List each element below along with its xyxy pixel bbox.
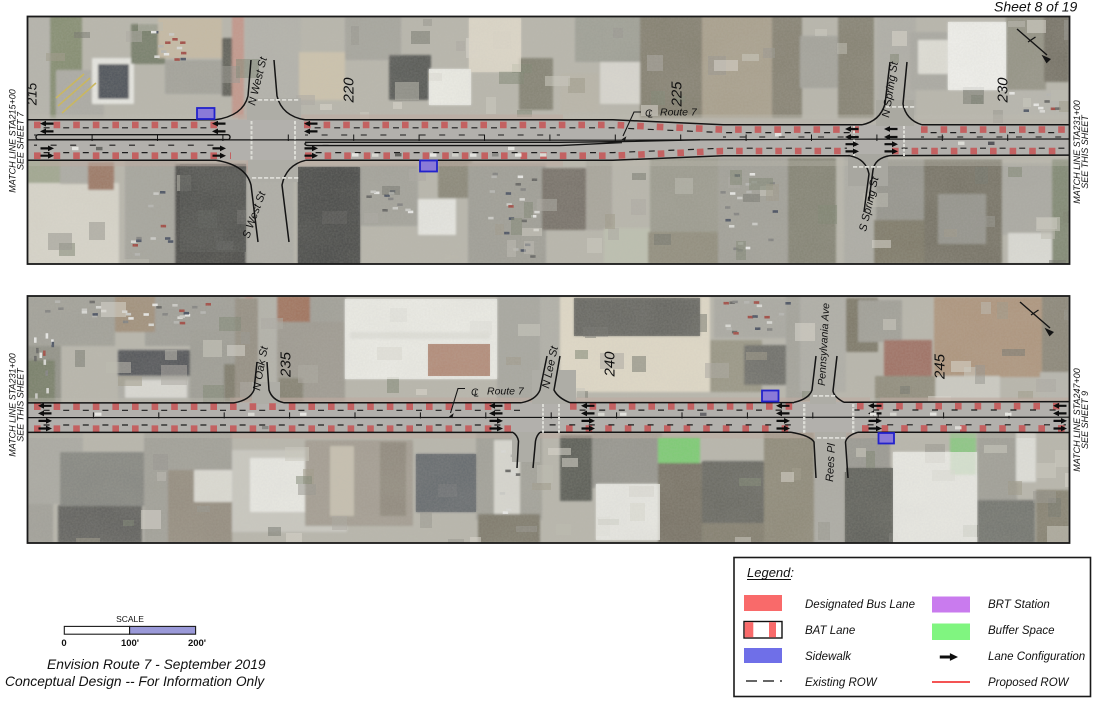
svg-text:100': 100': [121, 638, 139, 649]
svg-text:Rees Pl: Rees Pl: [824, 443, 838, 483]
svg-text:BAT Lane: BAT Lane: [805, 625, 855, 637]
svg-text:225: 225: [669, 81, 686, 108]
svg-text:Existing ROW: Existing ROW: [805, 677, 878, 689]
svg-text:Lane Configuration: Lane Configuration: [988, 651, 1085, 663]
svg-text:L: L: [474, 389, 479, 399]
svg-text:SEE THIS SHEET: SEE THIS SHEET: [1080, 114, 1090, 189]
svg-text:Sidewalk: Sidewalk: [805, 651, 852, 663]
svg-text:235: 235: [278, 351, 295, 378]
svg-text:SEE THIS SHEET: SEE THIS SHEET: [16, 367, 26, 442]
svg-text:BRT Station: BRT Station: [988, 599, 1050, 611]
svg-text:Route 7: Route 7: [487, 386, 525, 398]
svg-text:0: 0: [61, 638, 66, 649]
svg-text:SEE SHEET 9: SEE SHEET 9: [1080, 391, 1090, 449]
svg-text:Sheet 8 of 19: Sheet 8 of 19: [994, 0, 1078, 15]
svg-text:SCALE: SCALE: [116, 614, 144, 624]
svg-text:Legend:: Legend:: [747, 565, 794, 580]
svg-text:Designated Bus Lane: Designated Bus Lane: [805, 599, 915, 611]
svg-text:Route 7: Route 7: [660, 107, 698, 119]
svg-text:230: 230: [995, 77, 1012, 104]
svg-text:L: L: [648, 110, 653, 120]
svg-text:220: 220: [341, 77, 358, 104]
svg-text:SEE SHEET 7: SEE SHEET 7: [16, 111, 26, 170]
svg-text:Buffer Space: Buffer Space: [988, 625, 1054, 637]
svg-text:Conceptual Design -- For Infor: Conceptual Design -- For Information Onl…: [5, 674, 265, 689]
svg-text:245: 245: [932, 353, 949, 380]
svg-text:Proposed ROW: Proposed ROW: [988, 677, 1070, 689]
svg-text:200': 200': [188, 638, 206, 649]
svg-text:240: 240: [602, 351, 619, 378]
svg-text:Envision Route 7 - September: Envision Route 7 - September 2019: [47, 657, 266, 672]
